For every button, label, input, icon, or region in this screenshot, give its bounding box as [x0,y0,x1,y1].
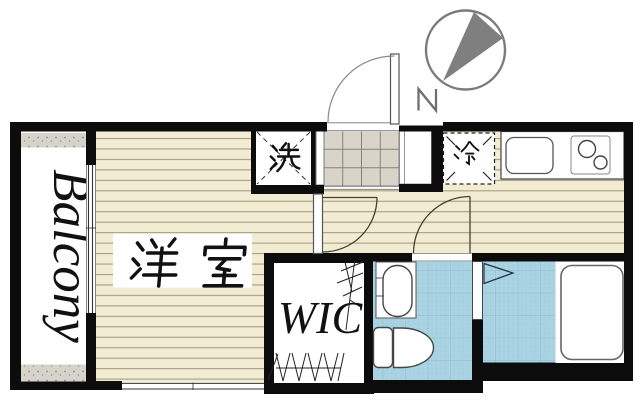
svg-text:WIC: WIC [278,292,364,343]
